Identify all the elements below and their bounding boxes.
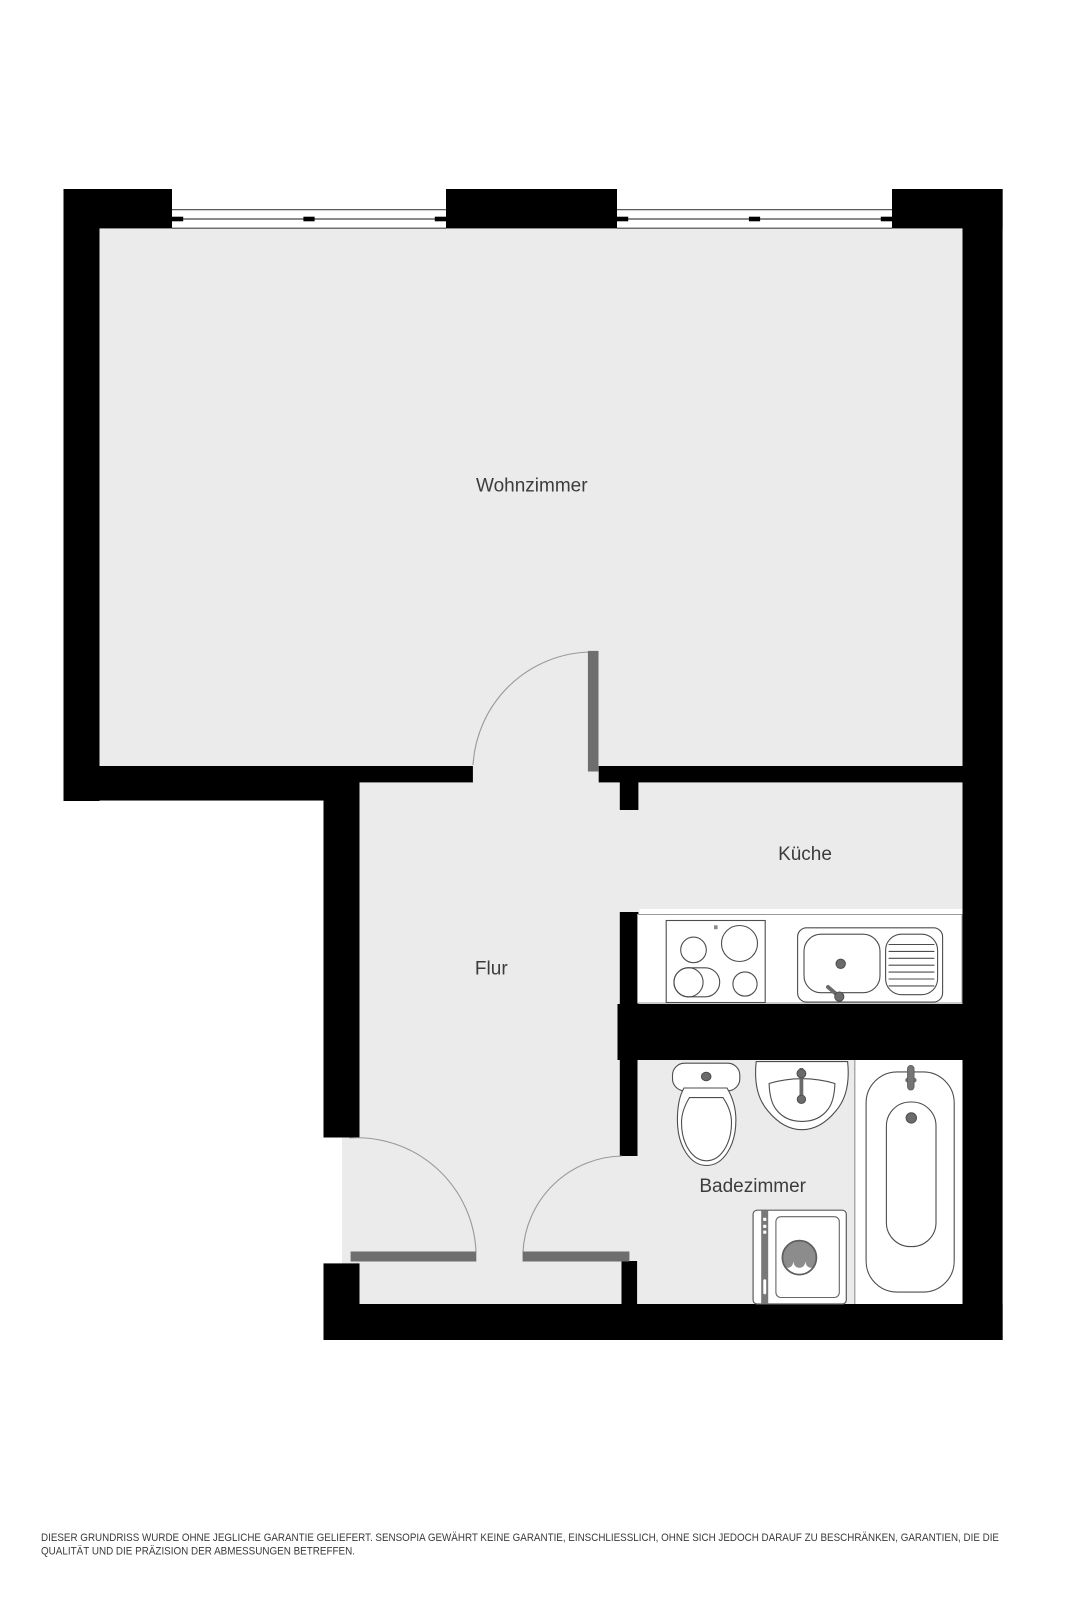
svg-text:Badezimmer: Badezimmer	[699, 1176, 806, 1197]
svg-text:Flur: Flur	[475, 959, 508, 980]
svg-text:Wohnzimmer: Wohnzimmer	[476, 476, 588, 497]
svg-text:Küche: Küche	[778, 844, 832, 865]
svg-text:QUALITÄT UND DIE PRÄZISION DER: QUALITÄT UND DIE PRÄZISION DER ABMESSUNG…	[41, 1546, 355, 1558]
svg-text:DIESER GRUNDRISS WURDE OHNE JE: DIESER GRUNDRISS WURDE OHNE JEGLICHE GAR…	[41, 1532, 999, 1544]
